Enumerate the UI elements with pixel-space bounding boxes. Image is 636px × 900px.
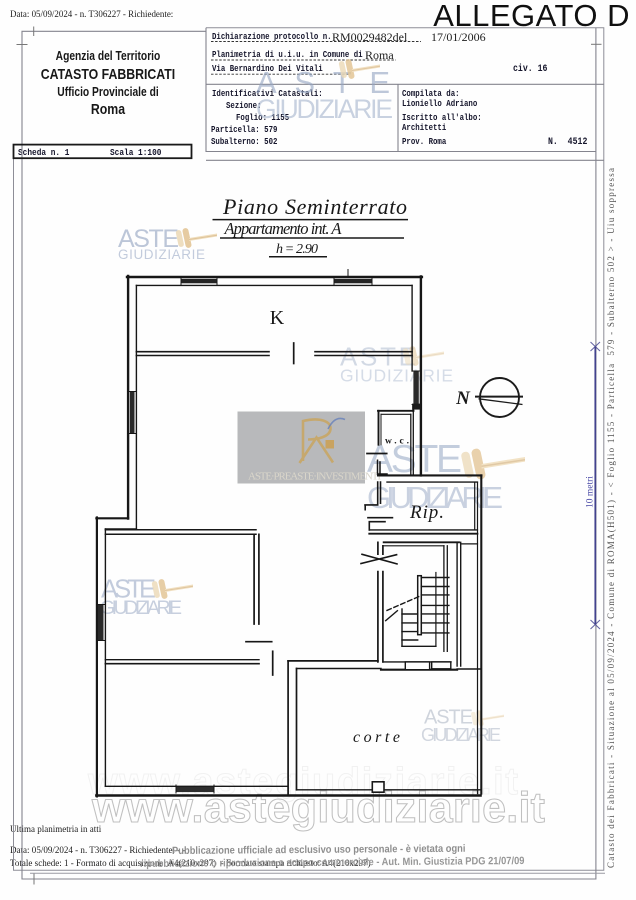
svg-text:GIUDIZIARIE: GIUDIZIARIE bbox=[118, 247, 205, 262]
svg-text:h = 2.90: h = 2.90 bbox=[276, 242, 318, 257]
svg-text:GIUDIZIARIE: GIUDIZIARIE bbox=[256, 94, 393, 124]
svg-text:GIUDIZIARIE: GIUDIZIARIE bbox=[340, 366, 453, 386]
svg-text:GIUDIZIARIE: GIUDIZIARIE bbox=[421, 725, 501, 745]
svg-text:Rip.: Rip. bbox=[409, 502, 444, 523]
svg-text:corte: corte bbox=[353, 729, 400, 746]
svg-text:ASTE·PREASTE·INVESTIMENTI: ASTE·PREASTE·INVESTIMENTI bbox=[248, 471, 381, 483]
svg-text:N: N bbox=[455, 388, 471, 409]
svg-text:Catasto dei Fabbricati - Situa: Catasto dei Fabbricati - Situazione al 0… bbox=[606, 168, 616, 868]
svg-text:K: K bbox=[270, 307, 285, 329]
svg-text:Piano Seminterrato: Piano Seminterrato bbox=[222, 194, 407, 219]
svg-text:10 metri: 10 metri bbox=[586, 476, 596, 508]
svg-text:GIUDIZIARIE: GIUDIZIARIE bbox=[100, 597, 182, 619]
svg-text:Appartamento int. A: Appartamento int. A bbox=[224, 219, 343, 238]
